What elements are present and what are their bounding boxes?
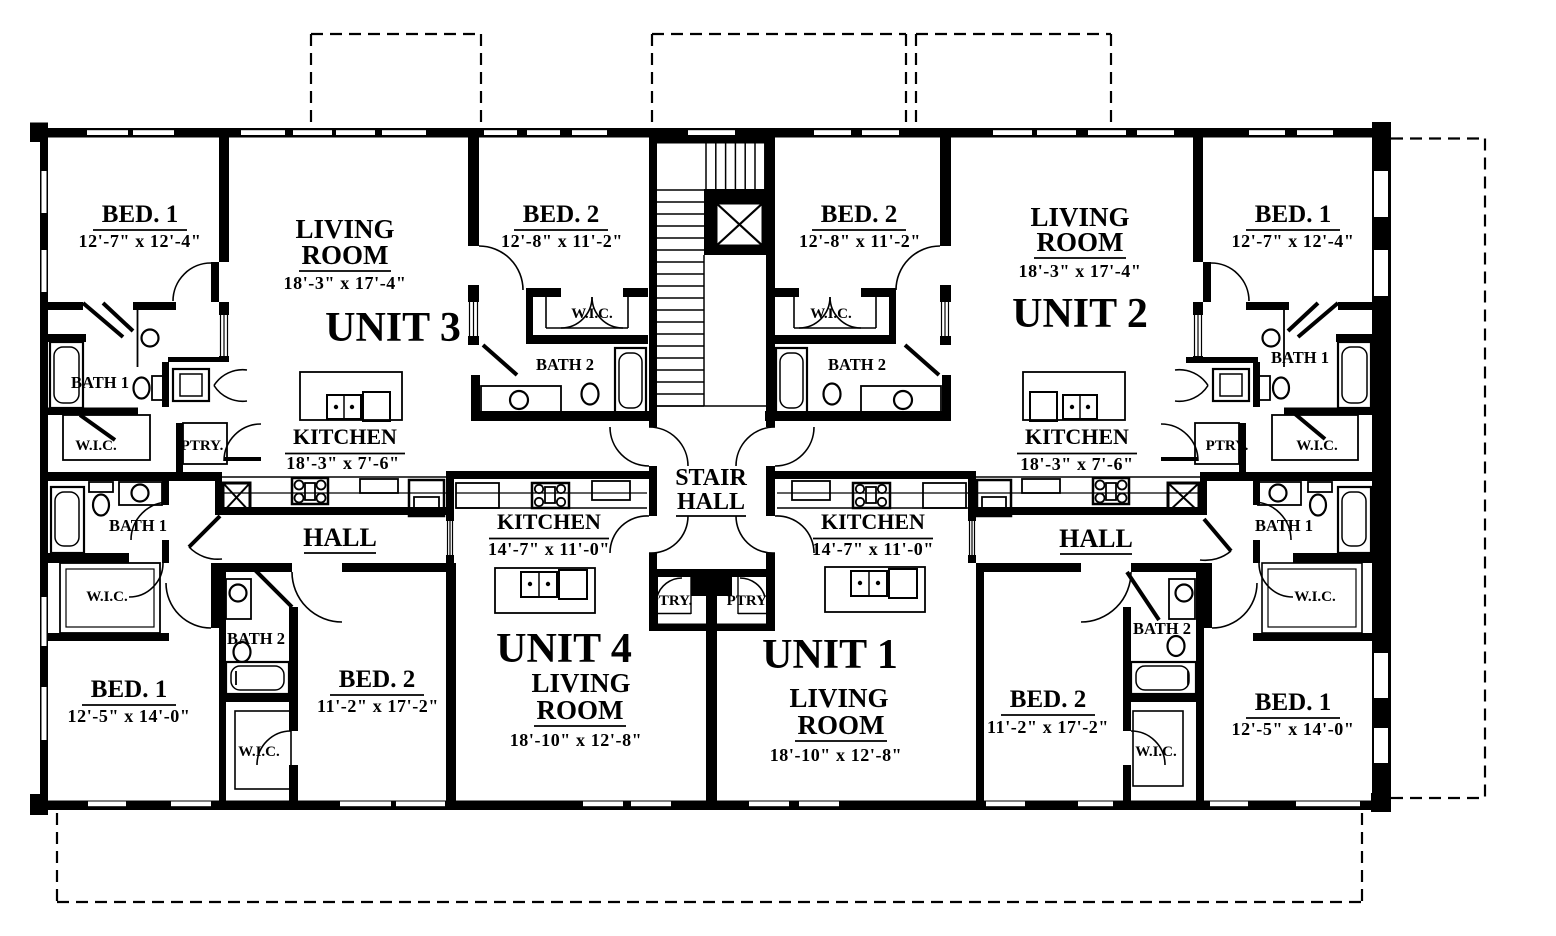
svg-text:BED. 2: BED. 2: [821, 201, 897, 228]
svg-text:12'-5" x 14'-0": 12'-5" x 14'-0": [68, 706, 191, 726]
svg-text:BATH 1: BATH 1: [1255, 516, 1313, 535]
svg-text:HALL: HALL: [677, 489, 745, 515]
svg-text:PTRY.: PTRY.: [727, 593, 770, 609]
svg-text:18'-3" x 17'-4": 18'-3" x 17'-4": [1019, 261, 1142, 281]
svg-text:KITCHEN: KITCHEN: [293, 424, 397, 449]
svg-text:BATH 1: BATH 1: [1271, 348, 1329, 367]
svg-text:W.I.C.: W.I.C.: [1296, 438, 1338, 454]
svg-text:BED. 1: BED. 1: [1255, 689, 1331, 716]
svg-text:BED. 1: BED. 1: [91, 676, 167, 703]
svg-text:BED. 2: BED. 2: [339, 666, 415, 693]
svg-text:PTRY.: PTRY.: [650, 593, 693, 609]
svg-text:BATH 2: BATH 2: [1133, 619, 1191, 638]
svg-text:KITCHEN: KITCHEN: [821, 509, 925, 534]
svg-text:UNIT 2: UNIT 2: [1012, 291, 1148, 337]
svg-text:PTRY.: PTRY.: [181, 438, 224, 454]
svg-text:12'-7" x 12'-4": 12'-7" x 12'-4": [79, 231, 202, 251]
svg-text:STAIR: STAIR: [675, 465, 747, 491]
svg-text:HALL: HALL: [303, 523, 377, 552]
svg-text:11'-2" x 17'-2": 11'-2" x 17'-2": [987, 717, 1109, 737]
svg-text:LIVING: LIVING: [531, 668, 630, 698]
svg-text:12'-5" x 14'-0": 12'-5" x 14'-0": [1232, 719, 1355, 739]
svg-text:12'-8" x 11'-2": 12'-8" x 11'-2": [799, 231, 921, 251]
svg-text:KITCHEN: KITCHEN: [497, 509, 601, 534]
svg-text:14'-7" x 11'-0": 14'-7" x 11'-0": [488, 539, 610, 559]
svg-text:UNIT 4: UNIT 4: [496, 626, 632, 672]
svg-text:14'-7" x 11'-0": 14'-7" x 11'-0": [812, 539, 934, 559]
svg-text:18'-3" x 7'-6": 18'-3" x 7'-6": [286, 453, 399, 473]
svg-text:18'-3" x 17'-4": 18'-3" x 17'-4": [284, 273, 407, 293]
svg-text:BATH 2: BATH 2: [828, 355, 886, 374]
svg-text:UNIT 1: UNIT 1: [762, 632, 898, 678]
svg-text:W.I.C.: W.I.C.: [86, 589, 128, 605]
svg-text:W.I.C.: W.I.C.: [1294, 589, 1336, 605]
svg-text:HALL: HALL: [1059, 524, 1133, 553]
svg-text:ROOM: ROOM: [1037, 227, 1124, 257]
svg-text:BED. 2: BED. 2: [1010, 686, 1086, 713]
svg-text:11'-2" x 17'-2": 11'-2" x 17'-2": [317, 696, 439, 716]
svg-text:BATH 2: BATH 2: [536, 355, 594, 374]
svg-text:18'-10" x 12'-8": 18'-10" x 12'-8": [770, 745, 903, 765]
svg-text:BATH 1: BATH 1: [109, 516, 167, 535]
svg-text:W.I.C.: W.I.C.: [571, 306, 613, 322]
svg-text:KITCHEN: KITCHEN: [1025, 424, 1129, 449]
svg-text:12'-7" x 12'-4": 12'-7" x 12'-4": [1232, 231, 1355, 251]
svg-text:LIVING: LIVING: [789, 683, 888, 713]
svg-text:W.I.C.: W.I.C.: [810, 306, 852, 322]
svg-text:W.I.C.: W.I.C.: [75, 438, 117, 454]
svg-text:BED. 1: BED. 1: [1255, 201, 1331, 228]
svg-text:UNIT 3: UNIT 3: [325, 305, 461, 351]
svg-text:18'-3" x 7'-6": 18'-3" x 7'-6": [1020, 454, 1133, 474]
svg-text:18'-10" x 12'-8": 18'-10" x 12'-8": [510, 730, 643, 750]
svg-text:BED. 1: BED. 1: [102, 201, 178, 228]
svg-text:ROOM: ROOM: [537, 695, 624, 725]
svg-text:12'-8" x 11'-2": 12'-8" x 11'-2": [501, 231, 623, 251]
svg-text:ROOM: ROOM: [798, 710, 885, 740]
svg-text:ROOM: ROOM: [302, 240, 389, 270]
svg-text:W.I.C.: W.I.C.: [1135, 744, 1177, 760]
svg-text:BATH 1: BATH 1: [71, 373, 129, 392]
svg-text:BED. 2: BED. 2: [523, 201, 599, 228]
